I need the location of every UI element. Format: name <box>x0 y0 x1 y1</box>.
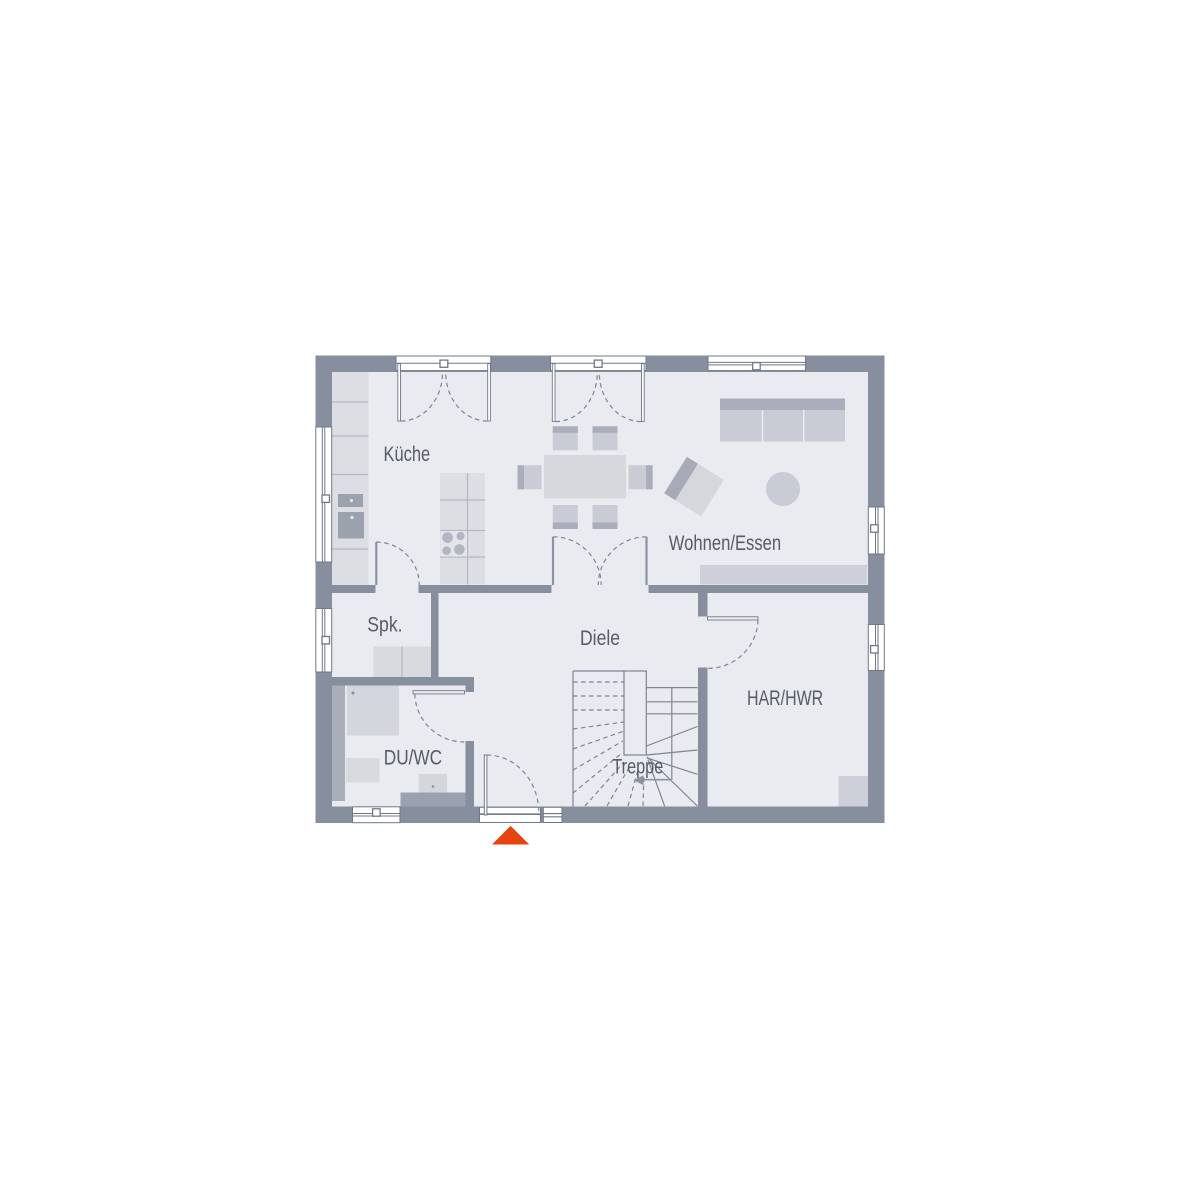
svg-text:Spk.: Spk. <box>367 613 402 637</box>
svg-text:Küche: Küche <box>384 442 431 465</box>
svg-text:Wohnen/Essen: Wohnen/Essen <box>669 532 781 555</box>
svg-text:HAR/HWR: HAR/HWR <box>747 686 823 710</box>
svg-text:Treppe: Treppe <box>612 755 663 778</box>
svg-text:DU/WC: DU/WC <box>384 747 442 770</box>
svg-text:Diele: Diele <box>580 627 620 651</box>
